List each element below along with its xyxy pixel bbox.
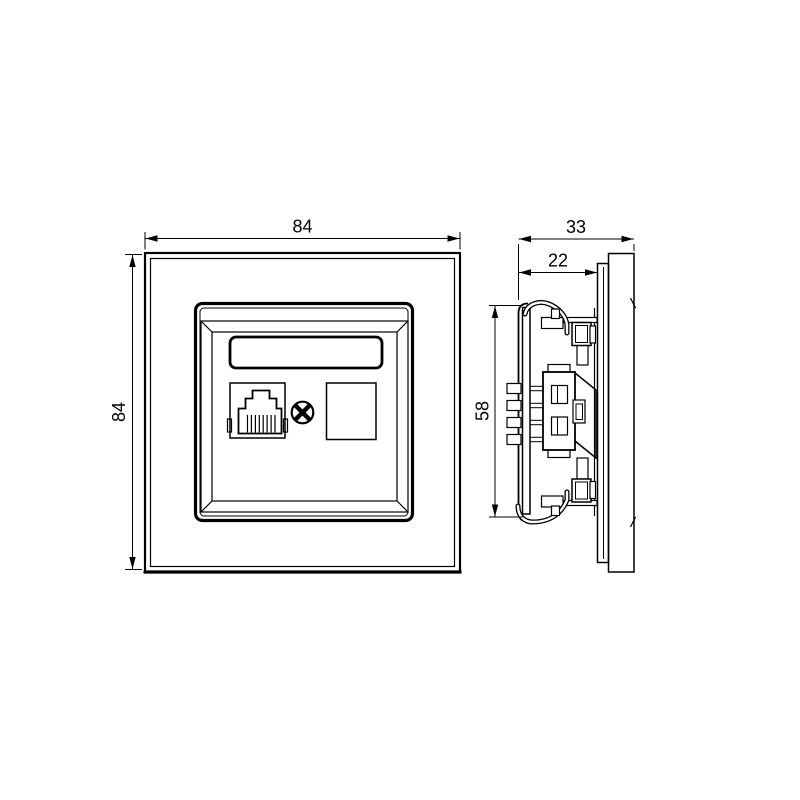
dim-front-width-label: 84 [292,217,312,237]
bottom-screw-box [572,479,596,502]
arrowhead-down-icon [492,505,498,517]
dim-side-height: 58 [473,306,524,518]
bottom-claw-screw [552,506,560,516]
arrowhead-down-icon [129,557,135,569]
cover-frame-profile [609,254,635,573]
arrowhead-right-icon [448,235,460,241]
dim-side-depth-total: 33 [519,217,635,300]
dim-front-height: 84 [109,255,142,570]
front-view: 84 84 [109,217,462,573]
funnel-slot [573,400,585,423]
dim-front-height-label: 84 [109,402,129,422]
bottom-claw-blade [542,496,564,507]
arrowhead-left-icon [519,269,531,275]
label-window [230,337,382,368]
dim-side-depth-front: 22 [519,251,598,276]
rj45-port-icon [228,383,288,438]
dim-side-depth-front-label: 22 [548,251,568,271]
top-screw-box [572,323,596,346]
arrowhead-right-icon [622,236,634,242]
rj45-pins [248,415,276,433]
top-claw-blade [542,318,564,329]
arrowhead-up-icon [492,306,498,318]
dim-front-width: 84 [145,217,460,250]
claw-support-bar [523,308,531,515]
arrowhead-right-icon [585,269,597,275]
funnel-top-post [577,344,588,365]
arrowhead-left-icon [519,236,531,242]
dim-side-depth-total-label: 33 [566,217,586,237]
fixing-screw-icon [292,402,314,424]
funnel-bottom-post [577,458,588,479]
arrowhead-up-icon [129,255,135,267]
top-claw-screw [552,309,560,319]
socket-dimension-drawing: 84 84 [0,0,800,800]
arrowhead-left-icon [146,235,158,241]
dim-side-height-label: 58 [473,401,493,421]
side-view: 33 22 58 [473,217,636,572]
terminal-block [543,365,575,458]
technical-drawing-page: 84 84 [0,0,800,800]
blank-module [327,383,377,440]
